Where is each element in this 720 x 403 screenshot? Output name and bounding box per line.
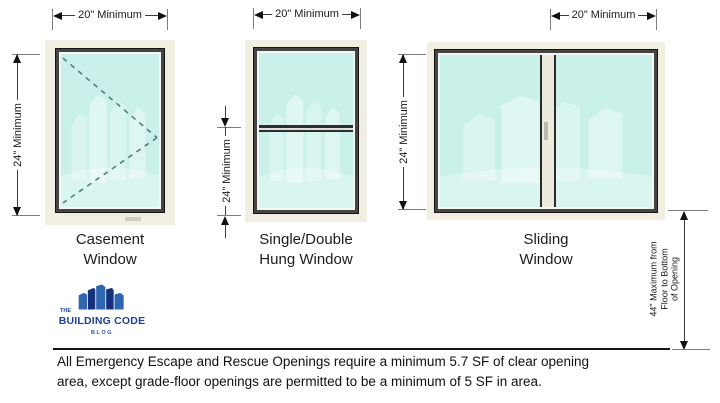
arrow-down-icon — [399, 201, 407, 210]
arrow-up-icon — [399, 54, 407, 63]
arrow-right-icon — [647, 12, 656, 20]
sliding-divider — [540, 55, 556, 207]
arrow-left-icon — [551, 12, 560, 20]
sliding-height-dimension: 24" Minimum — [393, 48, 415, 216]
meeting-rail — [259, 125, 353, 132]
dimension-tick — [672, 349, 710, 350]
casement-width-dimension: 20" Minimum — [52, 5, 168, 29]
dimension-line — [684, 212, 685, 347]
arrow-up-icon — [221, 216, 229, 225]
logo-name-text: BUILDING CODE — [59, 315, 146, 327]
buildings-icon — [77, 284, 127, 310]
dimension-tick — [360, 8, 361, 29]
floor-line — [53, 348, 670, 350]
sliding-handle — [544, 122, 548, 140]
hung-window-label: Single/Double Hung Window — [233, 230, 379, 270]
hung-window — [245, 40, 367, 222]
sill-height-dimension: 44" Maximum from Floor to Bottom of Open… — [655, 203, 713, 359]
sliding-window — [427, 42, 665, 220]
arrow-right-icon — [351, 11, 360, 19]
dimension-label: 44" Maximum from Floor to Bottom of Open… — [648, 241, 680, 316]
dimension-tick — [167, 9, 168, 30]
dimension-label: 20" Minimum — [272, 8, 342, 20]
egress-window-diagram: 20" Minimum 24" Minimum — [0, 0, 720, 403]
arrow-left-icon — [53, 12, 62, 20]
dimension-label: 20" Minimum — [569, 9, 639, 21]
logo-sub-text: BLOG — [58, 330, 146, 336]
casement-frame — [55, 48, 165, 213]
hung-height-dimension: 24" Minimum — [214, 106, 240, 238]
casement-window — [45, 40, 175, 225]
code-note-line1: All Emergency Escape and Rescue Openings… — [57, 352, 702, 372]
dimension-tick — [668, 210, 708, 211]
dimension-label: 24" Minimum — [221, 136, 233, 206]
sliding-window-label: Sliding Window — [456, 230, 636, 270]
sliding-glass — [440, 55, 652, 207]
arrow-up-icon — [680, 211, 688, 220]
dimension-line — [225, 225, 226, 238]
arrow-right-icon — [158, 12, 167, 20]
arrow-up-icon — [13, 54, 21, 63]
dimension-label: 20" Minimum — [75, 9, 145, 21]
hung-frame — [253, 47, 359, 214]
arrow-down-icon — [221, 118, 229, 127]
building-code-blog-logo: THE BUILDING CODE BLOG — [58, 284, 146, 336]
casement-window-label: Casement Window — [45, 230, 175, 270]
hung-width-dimension: 20" Minimum — [253, 4, 361, 28]
logo-the-text: THE — [60, 308, 71, 314]
casement-glass — [61, 54, 159, 207]
dimension-tick — [656, 9, 657, 30]
dimension-label: 24" Minimum — [398, 97, 410, 167]
code-note-line2: area, except grade-floor openings are pe… — [57, 372, 702, 392]
arrow-left-icon — [254, 11, 263, 19]
arrow-down-icon — [13, 207, 21, 216]
dimension-tick — [217, 127, 241, 128]
dimension-label: 24" Minimum — [12, 100, 24, 170]
sliding-width-dimension: 20" Minimum — [550, 5, 657, 29]
window-sill-handle — [125, 217, 141, 221]
casement-swing-lines — [61, 54, 159, 207]
code-note: All Emergency Escape and Rescue Openings… — [57, 352, 702, 391]
sliding-frame — [434, 49, 658, 213]
hung-glass — [259, 53, 353, 208]
casement-height-dimension: 24" Minimum — [7, 48, 29, 222]
